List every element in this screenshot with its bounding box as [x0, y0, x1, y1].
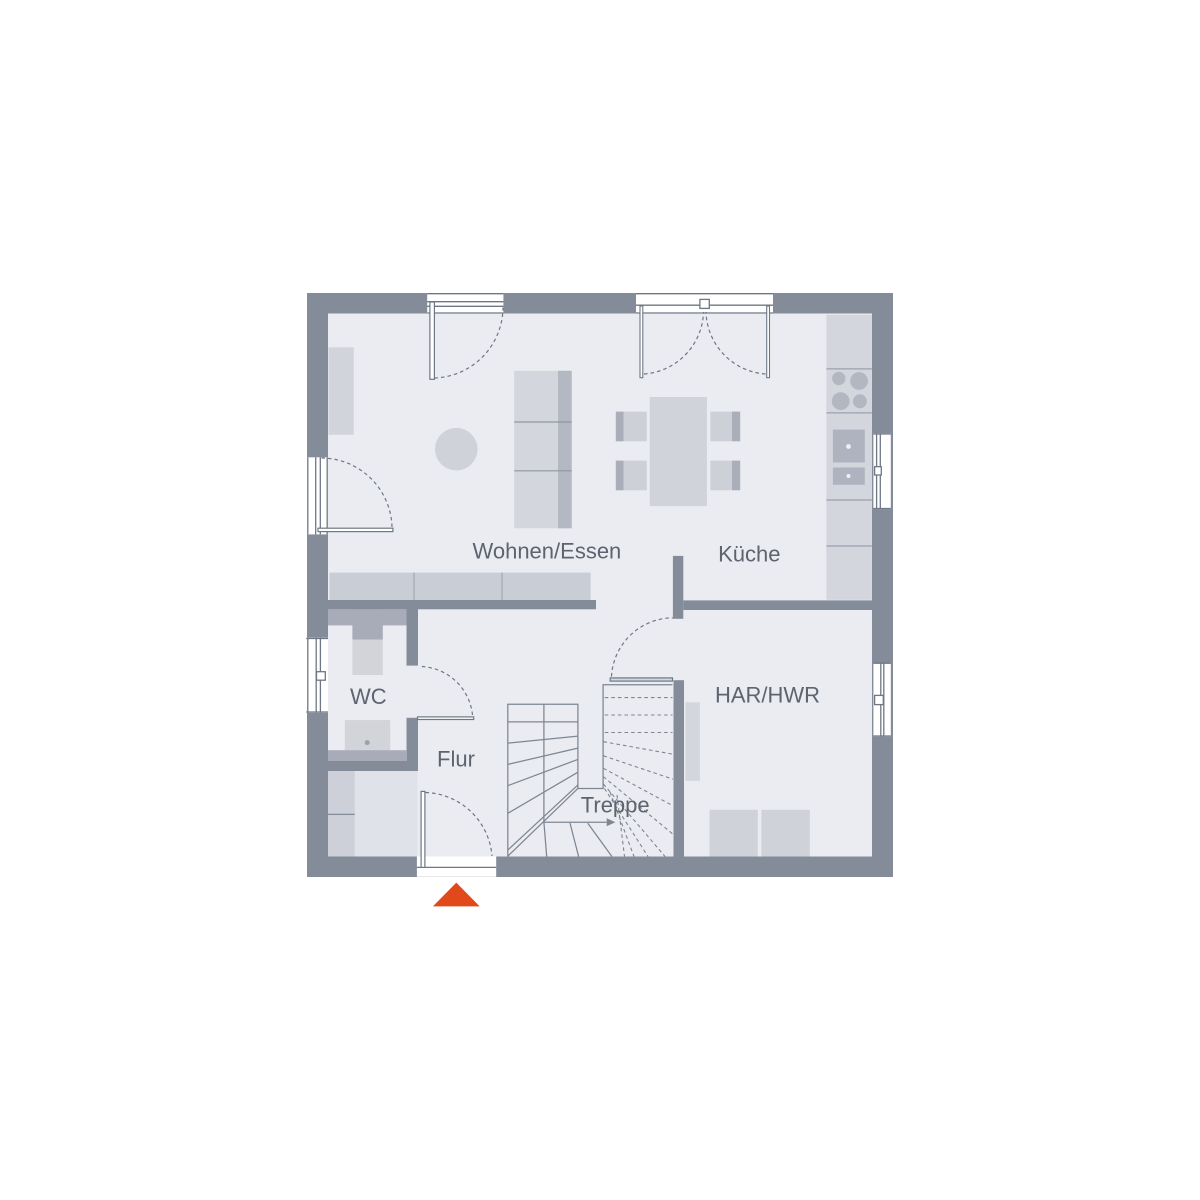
svg-text:Treppe: Treppe [581, 792, 650, 817]
svg-text:WC: WC [350, 684, 387, 709]
svg-text:Küche: Küche [718, 542, 780, 567]
svg-text:Wohnen/Essen: Wohnen/Essen [472, 538, 621, 563]
svg-text:Flur: Flur [437, 746, 475, 771]
svg-text:HAR/HWR: HAR/HWR [715, 682, 820, 707]
